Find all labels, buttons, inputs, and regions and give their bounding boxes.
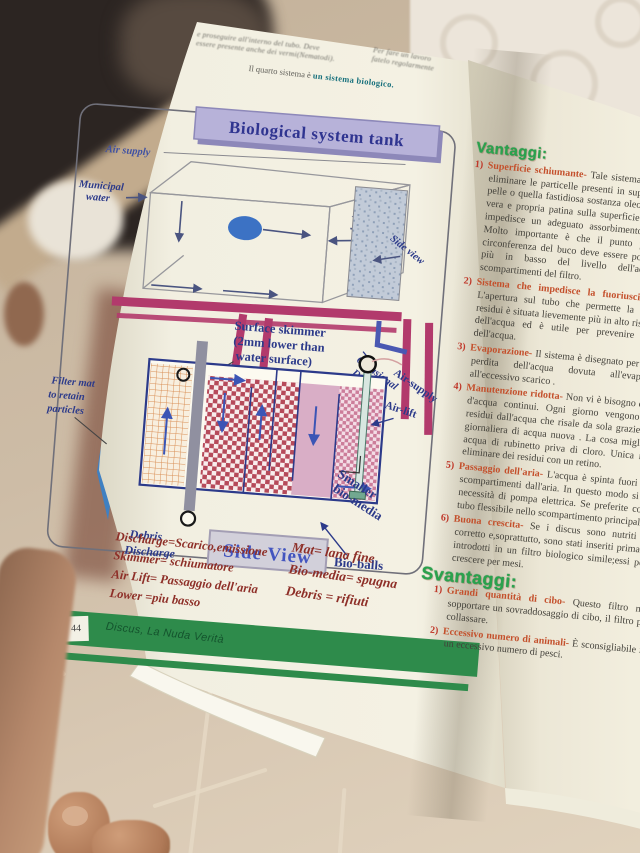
vantaggi-item: 1)Superficie schiumante- Tale sistema ha…	[464, 159, 640, 297]
item-number: 1)	[474, 159, 488, 173]
finger	[92, 820, 170, 853]
item-number: 5)	[445, 460, 459, 474]
item-body: Se i discus sono nutriti in modo corrett…	[452, 521, 640, 572]
item-number: 1)	[433, 584, 447, 598]
bio-media-checker	[200, 376, 301, 495]
item-number: 6)	[440, 513, 454, 527]
svg-text:Filter mat: Filter mat	[50, 375, 96, 390]
flow-arrows-top	[119, 196, 379, 303]
svg-text:water: water	[86, 192, 112, 205]
inlet-ellipse	[227, 215, 263, 242]
biological-system-diagram: Biological system tank Air supply Munici…	[34, 94, 469, 586]
item-number: 3)	[457, 341, 471, 355]
svg-text:particles: particles	[46, 403, 84, 417]
debris-outlet-ring	[181, 511, 196, 526]
item-body: Tale sistema ha dei fori atti a eliminar…	[479, 170, 640, 283]
air-lift-ring	[359, 356, 376, 373]
svg-text:to retain: to retain	[48, 389, 85, 403]
item-number: 2)	[429, 624, 443, 638]
item-number: 4)	[453, 381, 467, 395]
photo-of-book-page: e proseguire all'interno del tubo. Deve …	[0, 0, 640, 853]
item-body: Non vi è bisogno di fare cambi d'acqua c…	[462, 392, 640, 471]
thumb-holding-page	[4, 282, 44, 346]
svg-text:Municipal: Municipal	[78, 179, 125, 194]
filter-mat-label: Filter mat to retain particles	[44, 375, 112, 444]
fingernail	[62, 806, 88, 826]
item-number: 2)	[463, 275, 477, 289]
municipal-water-label: Municipal water	[77, 179, 125, 206]
air-supply-label: Air supply	[104, 144, 151, 159]
